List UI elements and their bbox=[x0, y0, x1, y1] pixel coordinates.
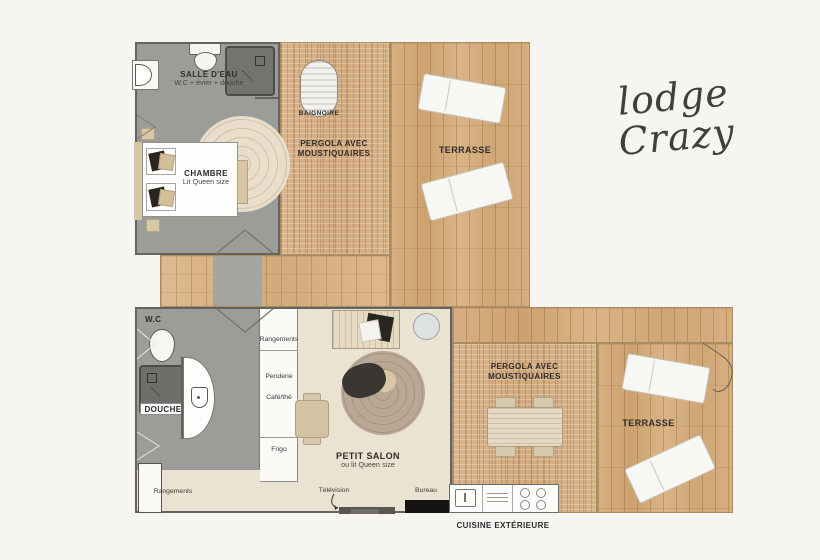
counter-lines bbox=[487, 497, 508, 498]
salle-deau-sub: W.C + évier + douche bbox=[149, 80, 269, 87]
top-unit-room: SALLE D'EAU W.C + évier + douche CHAMBRE… bbox=[135, 42, 280, 255]
bottom-unit-room: W.C DOUCHE Rangements Penderie Café/thé … bbox=[135, 307, 452, 513]
chambre-label: CHAMBRE Lit Queen size bbox=[175, 169, 237, 186]
stove-burner-icon bbox=[536, 500, 546, 510]
rangements-closet-label: Rangements bbox=[249, 336, 309, 343]
salle-deau-label: SALLE D'EAU W.C + évier + douche bbox=[149, 70, 269, 87]
toilet-bowl-icon bbox=[194, 52, 217, 71]
deck-walkway-floor bbox=[160, 255, 390, 307]
chair bbox=[495, 397, 516, 408]
pergola-bottom-label: PERGOLA AVEC MOUSTIQUAIRES bbox=[452, 362, 597, 382]
chair bbox=[303, 393, 321, 401]
counter-lines bbox=[487, 493, 508, 494]
dining-table bbox=[487, 407, 563, 447]
kitchen-counter bbox=[449, 484, 559, 513]
bath-stool bbox=[141, 128, 155, 140]
chair bbox=[533, 397, 554, 408]
rangements-bottom-label: Rangements bbox=[143, 488, 203, 495]
desk bbox=[405, 500, 449, 513]
chair bbox=[495, 446, 516, 457]
side-table bbox=[413, 313, 440, 340]
floor-plan: SALLE D'EAU W.C + évier + douche CHAMBRE… bbox=[0, 0, 820, 560]
faucet-icon bbox=[464, 493, 466, 502]
pillow-beige bbox=[158, 153, 175, 171]
pillow-box bbox=[146, 148, 176, 175]
faucet-icon bbox=[197, 396, 200, 399]
bureau-label: Bureau bbox=[396, 487, 456, 494]
petit-salon-title: PETIT SALON bbox=[308, 451, 428, 462]
pergola-bottom-line2: MOUSTIQUAIRES bbox=[452, 372, 597, 382]
stove-burner-icon bbox=[536, 488, 546, 498]
pergola-top-line2: MOUSTIQUAIRES bbox=[281, 149, 387, 159]
petit-salon-label: PETIT SALON ou lit Queen size bbox=[308, 451, 428, 469]
baignoire-label: BAIGNOIRE bbox=[288, 110, 350, 118]
pillow-box bbox=[146, 183, 176, 211]
bed-bench bbox=[237, 160, 248, 204]
terrasse-top-label: TERRASSE bbox=[418, 145, 512, 156]
chair bbox=[533, 446, 554, 457]
tv-console-shelf bbox=[351, 509, 379, 514]
sofa bbox=[332, 310, 400, 349]
stove-burner-icon bbox=[520, 500, 530, 510]
bed-headboard bbox=[134, 142, 142, 220]
counter-lines bbox=[487, 501, 508, 502]
petit-salon-sub: ou lit Queen size bbox=[308, 462, 428, 469]
douche-label: DOUCHE bbox=[140, 403, 186, 415]
pergola-bottom-line1: PERGOLA AVEC bbox=[452, 362, 597, 372]
television-label: Télévision bbox=[299, 487, 369, 494]
salle-deau-title: SALLE D'EAU bbox=[149, 70, 269, 80]
queen-bed: CHAMBRE Lit Queen size bbox=[142, 142, 238, 217]
frigo-label: Frigo bbox=[249, 446, 309, 453]
sofa-cushion-white bbox=[358, 319, 381, 342]
counter-divider bbox=[482, 485, 483, 512]
wood-strip-bottom bbox=[452, 307, 733, 343]
penderie-label: Penderie bbox=[249, 373, 309, 380]
pergola-top-line1: PERGOLA AVEC bbox=[281, 139, 387, 149]
lodge-title: lodge Crazy bbox=[582, 70, 768, 165]
coffee-table bbox=[295, 400, 329, 438]
stove-burner-icon bbox=[520, 488, 530, 498]
counter-divider bbox=[512, 485, 513, 512]
wc-label: W.C bbox=[145, 315, 175, 325]
cuisine-exterieure-label: CUISINE EXTÉRIEURE bbox=[438, 521, 568, 531]
deck-path bbox=[213, 256, 262, 306]
pillow-beige bbox=[158, 189, 175, 207]
chair bbox=[303, 437, 321, 445]
bathtub-icon bbox=[300, 60, 338, 117]
chambre-sub: Lit Queen size bbox=[175, 179, 237, 186]
chambre-title: CHAMBRE bbox=[175, 169, 237, 179]
stool bbox=[146, 219, 160, 232]
wall-stub bbox=[255, 97, 278, 99]
shower-head-icon bbox=[255, 56, 265, 66]
terrasse-bottom-label: TERRASSE bbox=[601, 418, 696, 429]
pergola-top-label: PERGOLA AVEC MOUSTIQUAIRES bbox=[281, 139, 387, 159]
